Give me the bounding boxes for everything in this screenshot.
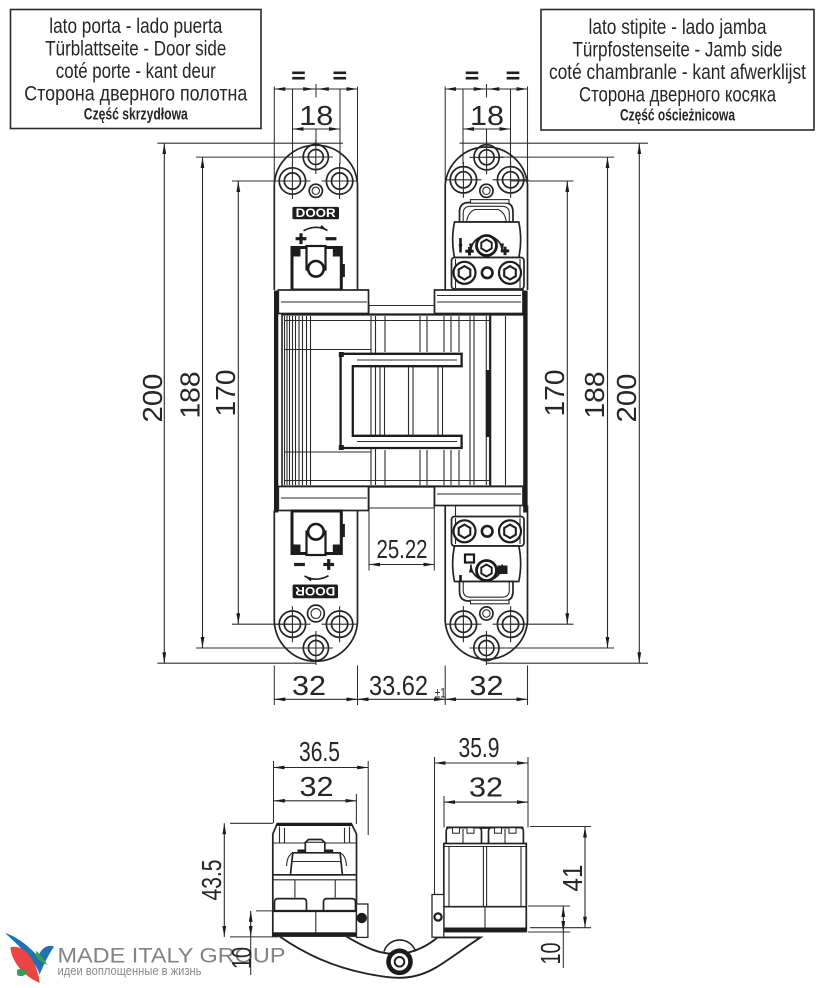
svg-text:18: 18 (299, 100, 333, 131)
svg-text:10: 10 (226, 947, 257, 969)
svg-text:coté porte - kant deur: coté porte - kant deur (56, 60, 216, 83)
svg-text:lato stipite - lado jamba: lato stipite - lado jamba (589, 16, 767, 39)
svg-text:coté chambranle - kant afwerkl: coté chambranle - kant afwerklijst (549, 61, 806, 84)
svg-text:200: 200 (137, 374, 168, 423)
svg-text:DOOR: DOOR (294, 584, 335, 596)
svg-text:±1: ±1 (435, 685, 446, 701)
svg-text:32: 32 (469, 772, 503, 803)
svg-text:идеи воплощенные в жизнь: идеи воплощенные в жизнь (58, 963, 202, 978)
svg-text:25.22: 25.22 (377, 534, 428, 564)
svg-text:43.5: 43.5 (196, 860, 227, 901)
svg-text:32: 32 (292, 670, 326, 701)
svg-text:18: 18 (470, 100, 504, 131)
svg-text:32: 32 (470, 670, 504, 701)
svg-text:188: 188 (175, 372, 206, 419)
svg-text:188: 188 (579, 372, 610, 419)
svg-text:Część ościeżnicowa: Część ościeżnicowa (620, 106, 735, 125)
svg-text:170: 170 (539, 370, 570, 417)
svg-text:Türblattseite - Door side: Türblattseite - Door side (45, 38, 226, 61)
svg-text:200: 200 (611, 374, 642, 423)
svg-text:lato porta - lado puerta: lato porta - lado puerta (49, 15, 222, 38)
svg-text:Türpfostenseite - Jamb side: Türpfostenseite - Jamb side (573, 39, 783, 62)
svg-text:35.9: 35.9 (459, 732, 500, 763)
svg-text:32: 32 (300, 771, 334, 802)
svg-text:Część skrzydłowa: Część skrzydłowa (84, 105, 188, 124)
svg-text:Сторона дверного косяка: Сторона дверного косяка (579, 84, 776, 107)
svg-text:170: 170 (210, 370, 241, 417)
svg-text:DOOR: DOOR (296, 208, 337, 220)
svg-text:Сторона дверного полотна: Сторона дверного полотна (24, 83, 247, 106)
svg-text:36.5: 36.5 (299, 736, 340, 767)
svg-text:10: 10 (535, 943, 566, 965)
svg-text:33.62: 33.62 (369, 670, 428, 701)
svg-text:41: 41 (557, 865, 588, 892)
